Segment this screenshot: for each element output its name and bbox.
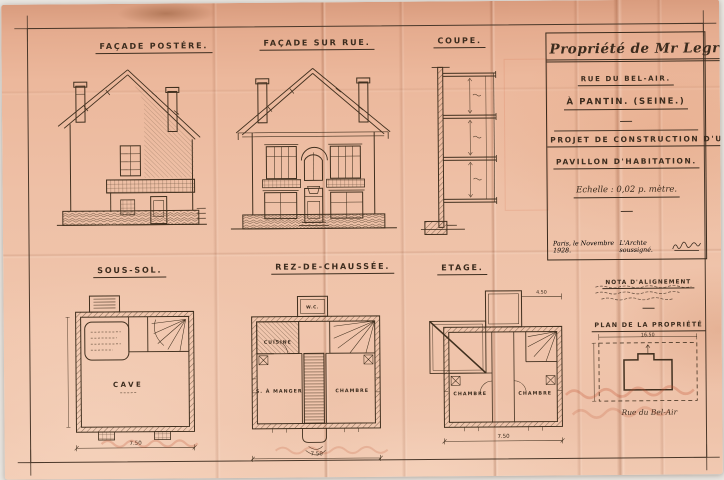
architect-signature [671,239,702,253]
drawing-sous-sol: Cave 7.50 [57,289,216,456]
title-scale: Echelle : 0,02 p. mètre. [548,184,706,195]
nota-divider-dash [643,308,655,309]
title-street: Rue du Bel-Air. [547,74,705,83]
label-facade-sur-rue: Façade sur Rue. [259,38,374,51]
drawing-facade-posterieure [54,59,211,242]
title-rule [554,129,698,131]
dim-etage-annex: 4.50 [536,290,547,296]
dim-property-width: 16.50 [641,332,655,338]
drawing-plan-propriete: 16.50 [590,331,709,406]
blueprint-sheet: Façade Postére. Façade sur Rue. Coupe. S… [1,0,723,480]
room-label-chambre-droite: Chambre [518,391,552,397]
dim-rdc-width: 7.50 [311,451,324,457]
title-owner-text: Propriété de Mr Legrand. [546,40,722,63]
title-project-line2: Pavillon d'Habitation. [547,156,705,166]
title-scale-text: Echelle : 0,02 p. mètre. [573,185,680,199]
label-facade-posterieure: Façade Postére. [95,41,212,54]
room-label-wc: W.C. [306,304,319,309]
drawing-etage: Chambre Chambre 4.50 7.50 [423,280,582,457]
title-project-line1-text: Projet de Construction d'un [547,134,723,147]
label-coupe: Coupe. [433,36,485,48]
nota-handwritten-lines [591,282,705,305]
title-project-line2-text: Pavillon d'Habitation. [553,156,700,169]
room-label-cave: Cave [113,381,143,389]
title-signature-row: Paris, le Novembre 1928. L'Archte soussi… [553,239,702,254]
dim-sous-sol-width: 7.50 [129,441,142,447]
property-street-label: Rue du Bel-Air [590,407,708,417]
room-label-salle-a-manger: S. à Manger [256,387,303,394]
room-label-chambre-gauche: Chambre [453,391,487,397]
title-street-text: Rue du Bel-Air. [578,75,674,87]
title-date: Paris, le Novembre 1928. [553,240,620,255]
title-block: Propriété de Mr Legrand. Rue du Bel-Air.… [545,31,707,260]
title-architect: L'Archte soussigné. [619,240,670,254]
title-city: à Pantin. (Seine.) [547,96,705,107]
dim-etage-width: 7.50 [497,434,510,440]
property-plan-title: Plan de la Propriété [586,313,712,332]
title-divider-dash [620,121,632,122]
title-owner: Propriété de Mr Legrand. [546,40,704,57]
drawing-rez-de-chaussee: Cuisine W.C. S. à Manger Chambre 7.50 [231,286,400,465]
drawing-coupe [418,59,509,246]
label-etage: Etage. [437,263,487,275]
property-plan-title-text: Plan de la Propriété [591,320,706,332]
drawing-facade-sur-rue [228,56,399,245]
room-label-cuisine: Cuisine [264,340,292,346]
label-rez-de-chaussee: Rez-de-Chaussée. [271,262,394,275]
title-divider-dash [621,211,633,212]
title-city-text: à Pantin. (Seine.) [563,96,688,110]
label-sous-sol: Sous-Sol. [93,266,166,279]
title-project-line1: Projet de Construction d'un [547,134,705,144]
room-label-chambre-rdc: Chambre [335,388,369,394]
